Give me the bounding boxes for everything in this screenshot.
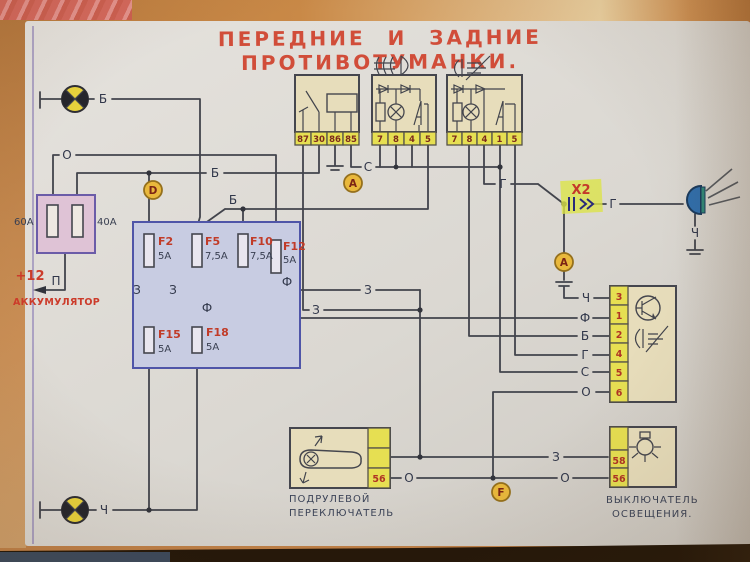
wire-c-t5: С xyxy=(581,365,589,379)
light-switch-label-2: ОСВЕЩЕНИЯ. xyxy=(612,509,692,520)
wire-g-t4: Г xyxy=(581,348,588,362)
fuse-f10-rating: 7,5А xyxy=(250,251,273,262)
front-unit-terminal-7: 7 xyxy=(377,135,383,145)
wire-f-f18: Ф xyxy=(202,301,212,315)
relay-terminal-86: 86 xyxy=(329,135,341,145)
wire-b-branch: Б xyxy=(229,193,237,207)
light-switch-label-1: ВЫКЛЮЧАТЕЛЬ xyxy=(606,495,699,506)
fuse-f15-name: F15 xyxy=(158,328,181,341)
fuse-f5-name: F5 xyxy=(205,235,220,248)
wire-z-bottom: З xyxy=(552,450,560,464)
wire-z-mid: З xyxy=(364,283,372,297)
wire-ch-bottom: Ч xyxy=(100,503,108,517)
wire-o-bot1: О xyxy=(404,471,413,485)
relay-terminal-87: 87 xyxy=(297,135,309,145)
switch-block-terminal-1: 1 xyxy=(616,311,623,322)
front-unit-terminal-4: 4 xyxy=(409,135,415,145)
fog-switch-block xyxy=(610,286,676,402)
fuse-f12-name: F12 xyxy=(283,240,306,253)
battery-arrow xyxy=(33,286,46,294)
rear-unit-terminal-5: 5 xyxy=(512,135,518,145)
wire-c-relay: С xyxy=(364,160,372,174)
marker-a1-label: А xyxy=(349,178,358,190)
column-switch-label-1: ПОДРУЛЕВОЙ xyxy=(289,492,370,505)
wire-f-f12: Ф xyxy=(282,275,292,289)
fuse-f18-rating: 5А xyxy=(206,342,219,353)
marker-a2-label: А xyxy=(560,257,569,269)
front-unit-terminal-8: 8 xyxy=(393,135,399,145)
relay-terminal-30: 30 xyxy=(313,135,325,145)
wire-f-t1: Ф xyxy=(580,311,590,325)
switch-block-terminal-3: 3 xyxy=(616,292,623,303)
front-fog-lamp-top-icon xyxy=(62,86,88,112)
fuse-f2-name: F2 xyxy=(158,235,173,248)
wire-o-feed: О xyxy=(62,148,71,162)
light-switch-terminal-58: 58 xyxy=(612,456,626,467)
switch-block-terminal-5: 5 xyxy=(616,368,623,379)
wire-z-lower: З xyxy=(312,303,320,317)
schematic: 60А 40А +12 П АККУМУЛЯТОР F2 5А F5 7,5А … xyxy=(0,0,750,562)
rear-unit-terminal-1: 1 xyxy=(497,135,503,145)
rear-unit-terminal-4: 4 xyxy=(482,135,488,145)
battery-label: АККУМУЛЯТОР xyxy=(13,297,100,308)
wire-b-t2: Б xyxy=(581,329,589,343)
wire-b-main: Б xyxy=(211,166,219,180)
light-switch-terminal-56: 56 xyxy=(612,474,626,485)
fuse-f5-rating: 7,5А xyxy=(205,251,228,262)
marker-d-label: D xyxy=(149,185,158,197)
wire-z-left2: З xyxy=(169,283,177,297)
fuse-f10-name: F10 xyxy=(250,235,273,248)
fuse-60a-label: 60А xyxy=(14,217,34,228)
fuse-40a-label: 40А xyxy=(97,217,117,228)
battery-fuse-block xyxy=(37,195,95,253)
fuse-f12-rating: 5А xyxy=(283,255,296,266)
wire-g-left: Г xyxy=(499,177,506,191)
wire-b-top: Б xyxy=(99,92,107,106)
wire-ch-t3: Ч xyxy=(582,291,590,305)
marker-f-label: F xyxy=(497,487,504,499)
rear-fog-lamp-icon xyxy=(687,169,740,214)
plus12-label: +12 xyxy=(16,269,45,284)
front-fog-icon xyxy=(374,56,408,75)
fuse-f18-name: F18 xyxy=(206,326,229,339)
wire-ch-rear: Ч xyxy=(691,226,699,240)
front-fog-lamp-bottom-icon xyxy=(62,497,88,523)
switch-block-terminal-2: 2 xyxy=(616,330,623,341)
rear-unit-terminal-7: 7 xyxy=(452,135,458,145)
wire-g-right: Г xyxy=(609,197,616,211)
fuse-f2-rating: 5А xyxy=(158,251,171,262)
relay-terminal-85: 85 xyxy=(345,135,357,145)
wire-z-left1: З xyxy=(133,283,141,297)
rear-unit-terminal-8: 8 xyxy=(467,135,473,145)
column-switch-terminal-56: 56 xyxy=(372,474,386,485)
wire-o-t6: О xyxy=(581,385,590,399)
switch-block-terminal-6: 6 xyxy=(616,388,623,399)
wire-o-bot2: О xyxy=(560,471,569,485)
x2-label: X2 xyxy=(571,183,590,198)
column-switch-label-2: ПЕРЕКЛЮЧАТЕЛЬ xyxy=(289,508,394,519)
battery-terminal-label: П xyxy=(51,274,60,288)
front-unit-terminal-5: 5 xyxy=(425,135,431,145)
switch-block-terminal-4: 4 xyxy=(616,349,623,360)
fuse-f15-rating: 5А xyxy=(158,344,171,355)
